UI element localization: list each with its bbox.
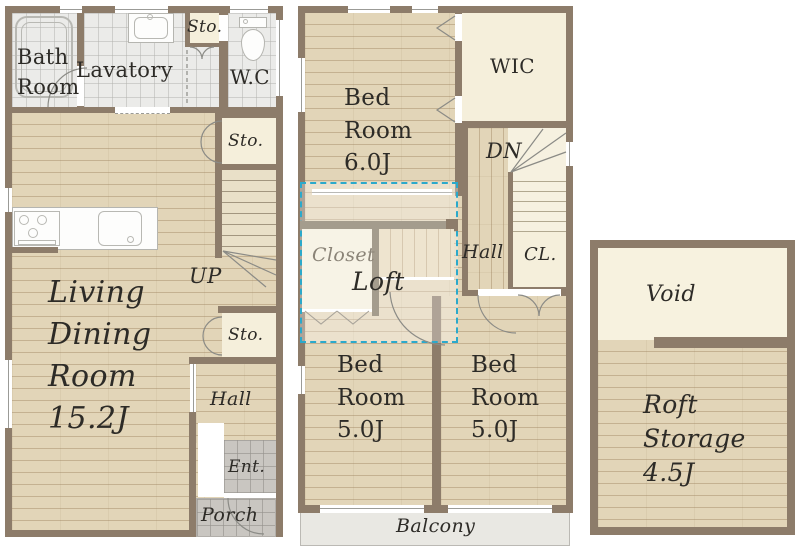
label-ent: Ent. [228,456,265,478]
window [60,6,82,13]
burner-icon [37,215,47,225]
label-closet: Closet [312,243,375,268]
window [276,20,283,96]
label-dn: DN [486,138,522,165]
closet-opening [302,309,372,312]
label-cl: CL. [524,243,557,266]
window [5,360,12,428]
wall-segment [189,357,276,364]
wall-segment [218,113,276,118]
balcony-window [448,505,552,513]
entrance-step [198,423,224,497]
window [298,366,305,394]
stairs-up [222,170,276,255]
label-void: Void [646,281,696,310]
label-up: UP [189,263,222,290]
label-bedroom-left: Bed Room 5.0J [337,349,405,447]
hall-opening [190,364,196,412]
label-sto-top: Sto. [187,16,222,38]
grill-icon [18,240,56,245]
window [115,6,168,13]
window [230,6,268,13]
label-bedroom-main: Bed Room 6.0J [344,82,412,180]
label-living-dining: Living Dining Room 15.2J [48,272,152,440]
window [348,6,390,13]
label-loft: Loft [352,266,405,299]
label-lavatory: Lavatory [76,57,173,84]
wall-segment [215,113,222,258]
wall-segment [654,337,795,348]
label-balcony: Balcony [396,514,475,539]
window [412,6,438,13]
wic-bifold-opening [455,14,462,41]
kitchen-sink-icon [98,211,142,246]
label-porch: Porch [201,503,258,528]
window [5,188,12,212]
wall-segment [218,306,276,313]
wall-segment [189,412,196,530]
label-wic: WIC [490,53,535,79]
faucet-icon [147,14,153,20]
vanity-bowl-icon [134,17,168,39]
label-bedroom-right: Bed Room 5.0J [471,349,539,447]
label-wc: W.C [230,64,270,90]
label-roft-storage: Roft Storage 4.5J [643,388,746,489]
lavatory-sliding-opening [115,107,170,114]
loft-wall [300,221,452,229]
burner-icon [28,228,38,238]
balcony-window [320,505,424,513]
window [298,58,305,112]
label-bath: Bath Room [17,42,80,103]
entrance-door-opening [224,493,276,498]
bedroom-door-opening [478,289,561,296]
label-sto-upper: Sto. [228,130,263,152]
window [566,142,573,166]
label-hall-1f: Hall [210,387,252,412]
wall-segment [218,164,276,170]
wic-bifold-opening [455,96,462,123]
label-hall-2f: Hall [462,240,504,265]
floor-plan-page: Bath Room Lavatory Sto. W.C Sto. UP Sto.… [0,0,800,556]
toilet-button-icon [243,19,248,24]
label-sto-mid: Sto. [228,324,263,346]
drain-icon [127,236,134,243]
stairs-down [513,172,566,232]
burner-icon [19,215,29,225]
wall-segment [5,247,58,253]
